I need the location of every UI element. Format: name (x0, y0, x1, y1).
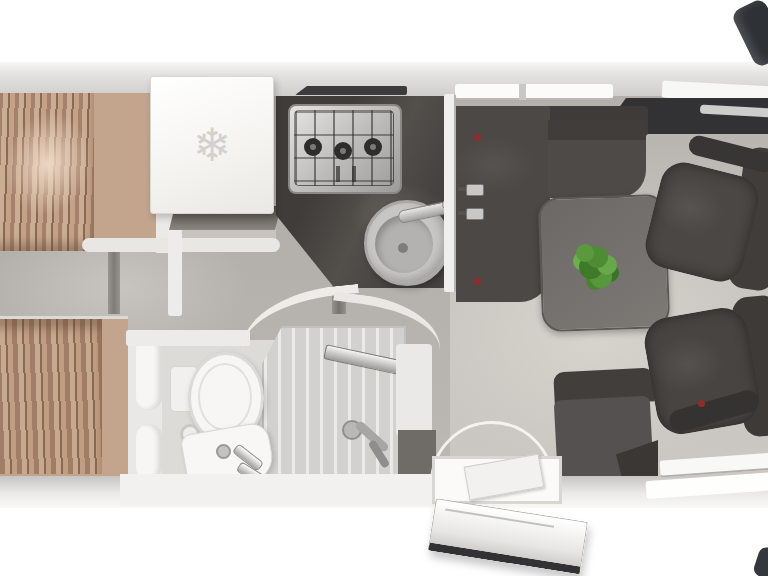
window-divider (519, 84, 526, 100)
seatbelt-anchor (474, 278, 481, 285)
dinette-window (455, 84, 613, 100)
washbasin-faucet (216, 444, 231, 459)
sink-drain (398, 243, 408, 253)
l-sofa-top-bench (548, 120, 646, 198)
open-entry-door (428, 498, 588, 574)
floorplan-canvas: ❄ (0, 0, 768, 576)
bathroom-column (136, 424, 162, 480)
seatbelt-buckle (466, 184, 484, 196)
refrigerator: ❄ (150, 76, 274, 214)
bed-bottom-duvet-folds (0, 319, 102, 474)
wing-mirror-icon (730, 0, 768, 69)
bathroom-column (136, 336, 162, 410)
seatbelt-anchor (474, 134, 481, 141)
hob-burner (334, 142, 352, 160)
dinette-table (538, 194, 671, 332)
wing-mirror-icon (752, 545, 768, 576)
bed-divider-wall (168, 230, 182, 316)
aisle-step-seam (108, 252, 120, 314)
l-sofa-side-bench (456, 106, 550, 302)
bathroom-right-wall (396, 344, 432, 436)
hob-burner (364, 138, 382, 156)
toilet-seat-ring (198, 363, 252, 431)
snowflake-icon: ❄ (193, 122, 232, 168)
kitchen-window-slit (295, 86, 407, 95)
seatbelt-anchor (698, 400, 705, 407)
hob-control (336, 166, 340, 182)
bathroom-bottom-wall (120, 474, 434, 506)
hob-burner (304, 138, 322, 156)
kitchen-partition-wall (444, 94, 456, 292)
plant-icon (576, 244, 594, 262)
hob-control (352, 166, 356, 182)
seatbelt-buckle (466, 208, 484, 220)
bathroom-top-wall (126, 330, 250, 346)
